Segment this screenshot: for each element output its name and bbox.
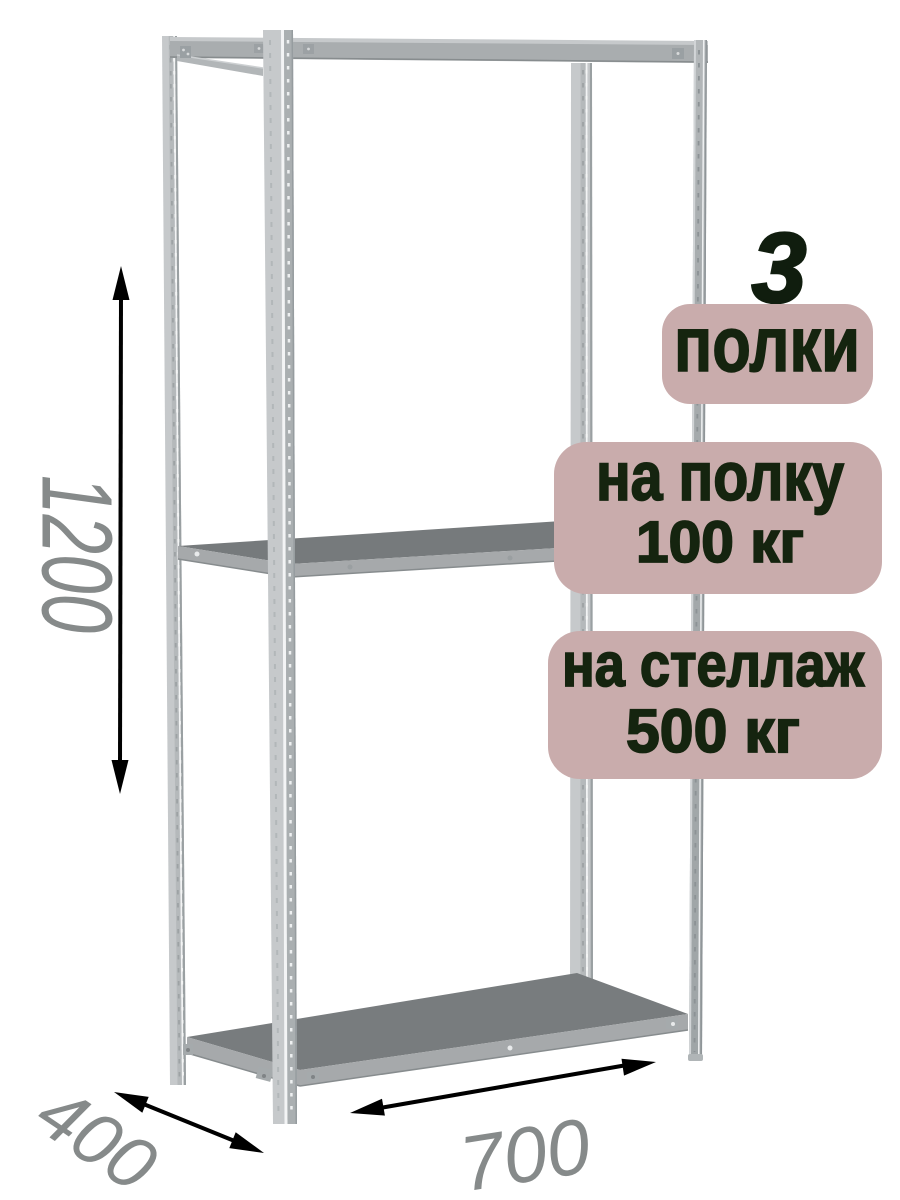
svg-text:полки: полки (674, 300, 860, 388)
svg-text:на полку: на полку (596, 438, 844, 515)
svg-text:100 кг: 100 кг (636, 510, 804, 575)
svg-text:на стеллаж: на стеллаж (562, 631, 865, 700)
svg-text:1200: 1200 (21, 475, 133, 633)
svg-text:500 кг: 500 кг (626, 697, 800, 765)
